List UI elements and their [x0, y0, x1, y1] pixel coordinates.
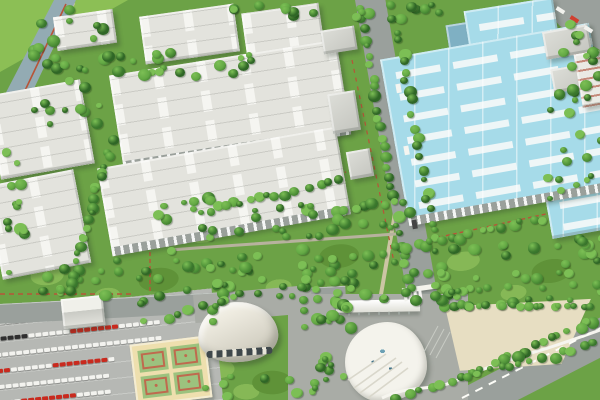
crosswalk [403, 290, 422, 301]
wavy-white-wall [382, 330, 600, 398]
avenue-cars [395, 84, 417, 230]
industrial-park-model-photo [0, 0, 600, 400]
detail-decor [0, 0, 600, 400]
highway-cars [556, 6, 594, 33]
flag-poles [424, 326, 450, 358]
